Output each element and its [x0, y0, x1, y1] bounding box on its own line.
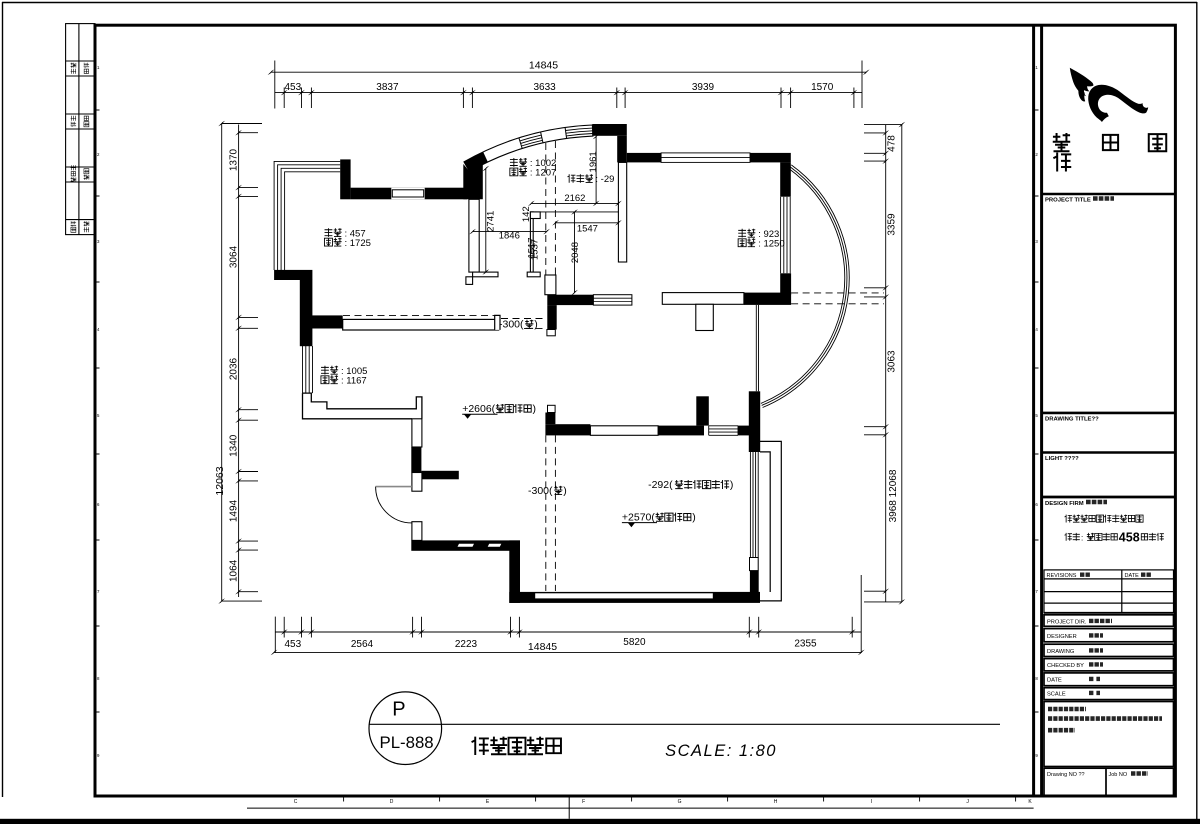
svg-text:Drawing NO ??: Drawing NO ??	[1047, 772, 1085, 778]
svg-text:): )	[563, 485, 567, 497]
svg-text:Job NO: Job NO	[1109, 772, 1128, 778]
svg-text:SCALE: SCALE	[1047, 691, 1066, 697]
svg-text:PROJECT TITLE: PROJECT TITLE	[1045, 197, 1091, 203]
svg-text:D: D	[390, 799, 394, 805]
svg-text::: :	[1081, 533, 1083, 542]
svg-text:453: 453	[284, 639, 301, 650]
svg-text:2036: 2036	[228, 357, 239, 380]
svg-text:PROJECT DIR.: PROJECT DIR.	[1047, 619, 1087, 625]
svg-text:3633: 3633	[533, 82, 556, 93]
svg-text:P: P	[392, 699, 405, 721]
svg-text:5820: 5820	[623, 637, 646, 648]
svg-text:): )	[692, 512, 696, 524]
svg-text:1547: 1547	[577, 224, 598, 235]
svg-text:REVISIONS: REVISIONS	[1047, 573, 1077, 579]
svg-text:3359: 3359	[887, 213, 898, 236]
svg-text:+2606(: +2606(	[462, 403, 495, 415]
svg-text:14845: 14845	[528, 641, 557, 653]
svg-text:CHECKED BY: CHECKED BY	[1047, 663, 1084, 669]
svg-text:PL-888: PL-888	[380, 733, 434, 752]
svg-text:3837: 3837	[376, 82, 399, 93]
svg-text:DRAWING TITLE??: DRAWING TITLE??	[1045, 417, 1099, 423]
svg-text:1846: 1846	[499, 231, 520, 242]
svg-text:G: G	[678, 799, 682, 805]
svg-text:): )	[730, 479, 734, 491]
svg-text:2223: 2223	[455, 639, 478, 650]
svg-text:1340: 1340	[228, 434, 239, 457]
svg-text:1570: 1570	[811, 82, 834, 93]
svg-text:2162: 2162	[564, 193, 585, 204]
svg-text:DATE: DATE	[1125, 573, 1140, 579]
svg-text:1961: 1961	[588, 151, 599, 172]
svg-text:3968 12068: 3968 12068	[888, 469, 899, 522]
svg-text:C: C	[294, 799, 298, 805]
svg-text:1494: 1494	[228, 499, 239, 522]
svg-text:DRAWING: DRAWING	[1047, 649, 1074, 655]
svg-text:I: I	[871, 799, 872, 805]
svg-text:2355: 2355	[794, 639, 817, 650]
svg-text:458: 458	[1119, 530, 1140, 544]
svg-text:): )	[533, 403, 537, 415]
svg-text:-292(: -292(	[648, 479, 673, 491]
svg-text:H: H	[774, 799, 778, 805]
svg-text:2564: 2564	[351, 639, 374, 650]
svg-text:478: 478	[887, 135, 898, 152]
svg-text:14845: 14845	[529, 60, 558, 72]
svg-text:3064: 3064	[228, 245, 239, 268]
svg-text:): )	[534, 319, 538, 331]
svg-text:-300(: -300(	[528, 485, 553, 497]
svg-text:: 1250: : 1250	[758, 238, 784, 249]
svg-text:2741: 2741	[486, 211, 497, 232]
svg-text:DESIGNER: DESIGNER	[1047, 634, 1077, 640]
svg-text:1064: 1064	[228, 559, 239, 582]
svg-text:: 1207: : 1207	[530, 168, 556, 179]
svg-text:DESIGN FIRM: DESIGN FIRM	[1045, 501, 1084, 507]
svg-text:: 1167: : 1167	[341, 375, 367, 386]
svg-text:3063: 3063	[887, 350, 898, 373]
svg-text:F: F	[582, 799, 585, 805]
svg-text:1537: 1537	[530, 239, 541, 260]
svg-text:3939: 3939	[692, 82, 715, 93]
svg-text:453: 453	[284, 82, 301, 93]
svg-text:+2570(: +2570(	[622, 512, 655, 524]
svg-text:142: 142	[521, 206, 532, 222]
svg-text:2048: 2048	[570, 242, 581, 263]
svg-text:: 1725: : 1725	[345, 238, 371, 249]
svg-text:12063: 12063	[214, 466, 226, 495]
svg-text:SCALE: 1:80: SCALE: 1:80	[665, 742, 777, 760]
svg-text:LIGHT ????: LIGHT ????	[1045, 456, 1079, 462]
svg-text:: -29: : -29	[595, 174, 614, 185]
svg-text:DATE: DATE	[1047, 677, 1062, 683]
svg-text:1370: 1370	[228, 148, 239, 171]
svg-text:-300(: -300(	[499, 319, 524, 331]
